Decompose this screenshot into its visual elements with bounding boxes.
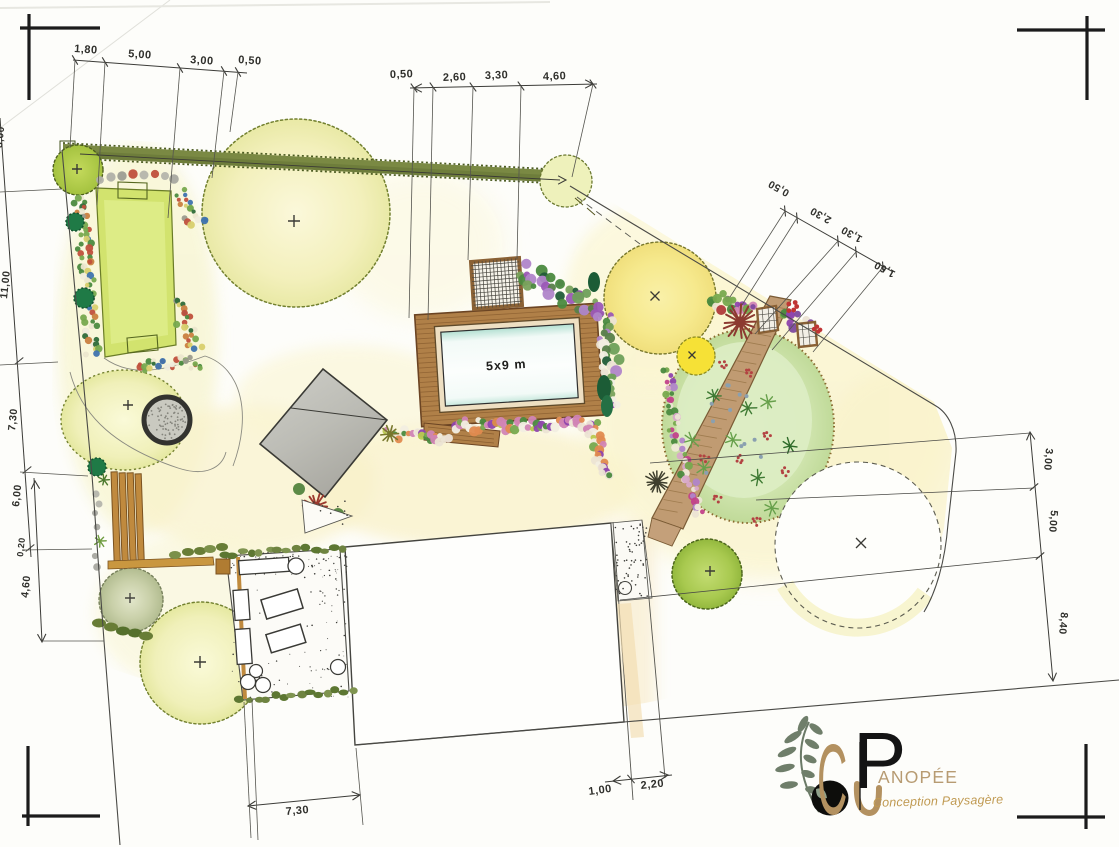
svg-text:C: C	[817, 725, 847, 836]
svg-text:7,30: 7,30	[285, 804, 309, 818]
svg-text:5,00: 5,00	[128, 48, 152, 62]
svg-text:3,30: 3,30	[485, 69, 509, 82]
svg-text:5,00: 5,00	[1046, 510, 1060, 533]
svg-text:8,40: 8,40	[1056, 612, 1070, 635]
svg-text:1,80: 1,80	[74, 43, 98, 57]
svg-text:0,50: 0,50	[238, 54, 262, 68]
svg-text:6,00: 6,00	[10, 484, 24, 508]
svg-text:0,20: 0,20	[15, 537, 27, 557]
svg-text:3,00: 3,00	[1041, 448, 1055, 471]
svg-text:0,50: 0,50	[390, 68, 414, 81]
svg-text:3,00: 3,00	[190, 54, 214, 68]
svg-text:2,60: 2,60	[443, 71, 467, 84]
svg-text:2,20: 2,20	[640, 778, 665, 792]
svg-text:4,60: 4,60	[19, 575, 33, 599]
svg-text:P: P	[853, 716, 906, 805]
svg-text:4,60: 4,60	[543, 70, 567, 83]
svg-text:7,30: 7,30	[6, 408, 20, 432]
svg-text:ANOPÉE: ANOPÉE	[878, 767, 958, 787]
svg-text:5x9 m: 5x9 m	[486, 357, 527, 374]
